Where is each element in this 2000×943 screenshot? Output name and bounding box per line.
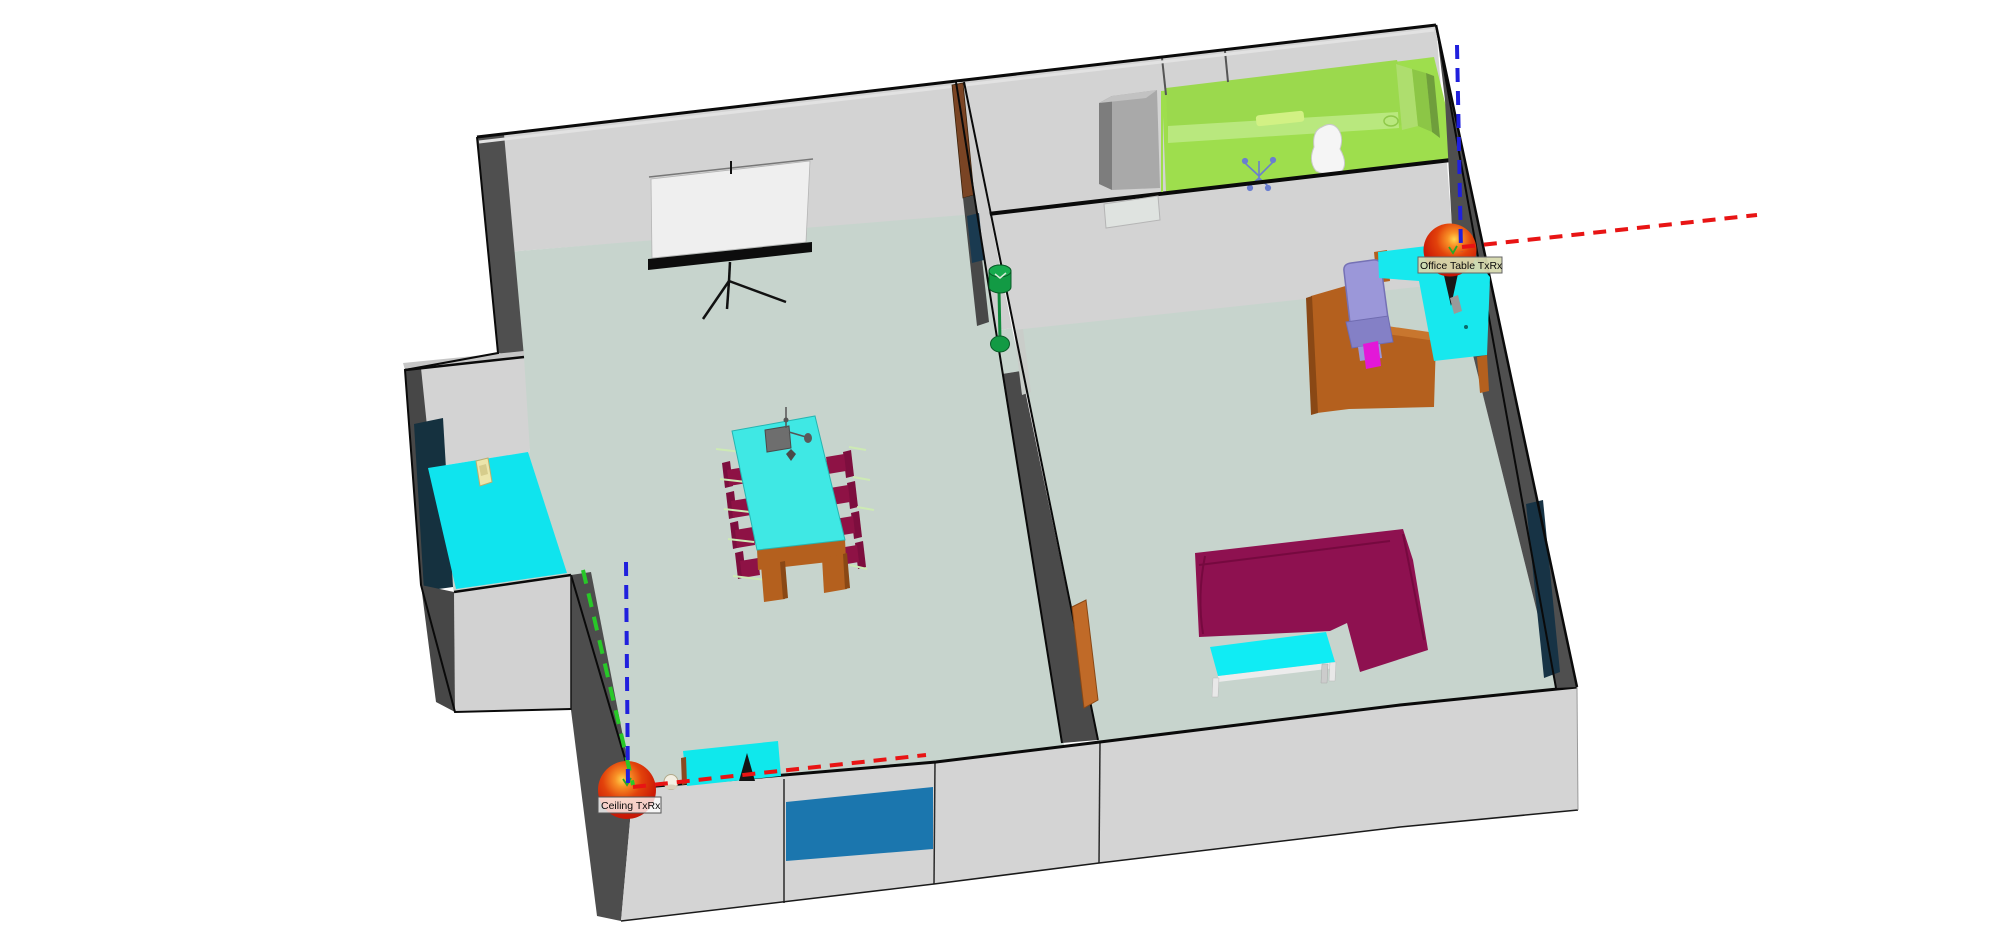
svg-text:Ceiling TxRx: Ceiling TxRx: [601, 800, 661, 812]
svg-text:Office Table TxRx: Office Table TxRx: [1420, 260, 1503, 272]
